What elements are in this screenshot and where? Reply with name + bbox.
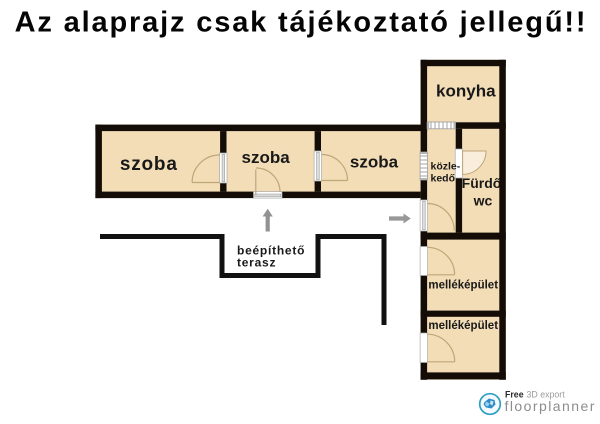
svg-text:melléképület: melléképület bbox=[428, 280, 498, 292]
svg-text:terasz: terasz bbox=[237, 256, 276, 270]
svg-text:közle-: közle- bbox=[431, 161, 461, 173]
svg-text:floorplanner: floorplanner bbox=[505, 398, 596, 414]
svg-text:melléképület: melléképület bbox=[428, 320, 498, 332]
svg-text:konyha: konyha bbox=[436, 82, 496, 101]
svg-text:Fürdő: Fürdő bbox=[462, 175, 502, 191]
svg-text:szoba: szoba bbox=[120, 154, 178, 175]
svg-text:kedő: kedő bbox=[431, 173, 456, 185]
svg-text:szoba: szoba bbox=[242, 148, 291, 167]
svg-text:wc: wc bbox=[473, 193, 493, 209]
svg-text:szoba: szoba bbox=[350, 153, 399, 172]
svg-text:Az alaprajz csak tájékoztató j: Az alaprajz csak tájékoztató jellegű!! bbox=[15, 7, 588, 39]
